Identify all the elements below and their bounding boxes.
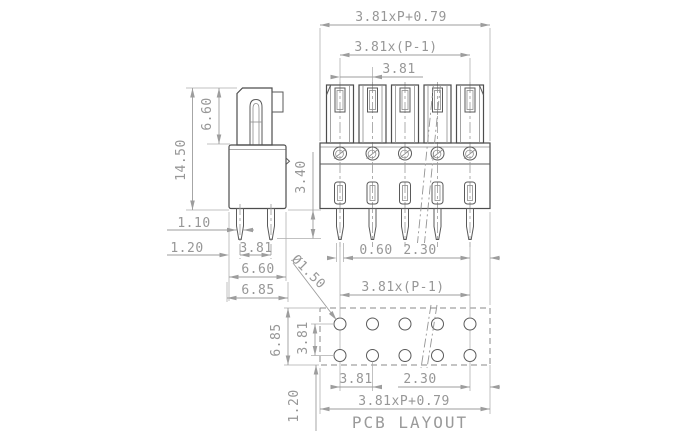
- dim-side-tower-height: 6.60: [200, 97, 215, 130]
- side-slot-inner: [253, 104, 259, 146]
- pcb-layout-title: PCB LAYOUT: [352, 413, 468, 432]
- break-line: [421, 305, 431, 368]
- dim-pcb-edge-offset: 2.30: [403, 372, 436, 387]
- dim-side-body-width: 6.60: [241, 262, 274, 277]
- dim-front-span: 3.81x(P-1): [354, 40, 437, 55]
- front-view-dimensions-bottom: 0.60 2.30: [327, 243, 500, 262]
- dim-side-pin-offset: 1.20: [170, 241, 203, 256]
- dim-side-height: 14.50: [174, 139, 189, 181]
- front-view-dimensions-top: 3.81xP+0.79 3.81x(P-1) 3.81: [320, 10, 490, 141]
- dim-pcb-row-pitch: 3.81: [296, 321, 311, 354]
- side-latch-bump: [272, 92, 283, 112]
- drawing-canvas: 14.50 6.60 3.40 1.10 1.20 3.81 6.60: [0, 0, 680, 440]
- dim-pcb-bottom-margin: 1.20: [287, 389, 302, 422]
- side-view: [229, 88, 290, 259]
- dim-side-pin-thickness: 1.10: [177, 216, 210, 231]
- pcb-layout: [320, 305, 490, 368]
- side-body-outline: [229, 145, 286, 209]
- dim-pcb-hole-diameter: Ø1.50: [288, 252, 328, 292]
- dim-front-edge-offset: 2.30: [403, 243, 436, 258]
- dim-pcb-span: 3.81x(P-1): [361, 280, 444, 295]
- dim-pcb-pitch: 3.81: [339, 372, 372, 387]
- dim-front-pitch: 3.81: [382, 62, 415, 77]
- dim-side-pitch: 3.81: [239, 241, 272, 256]
- dim-front-pin-width: 0.60: [359, 243, 392, 258]
- dim-pcb-overall: 3.81xP+0.79: [358, 394, 450, 409]
- dim-pcb-height: 6.85: [269, 323, 284, 356]
- dim-side-overall-width: 6.85: [241, 283, 274, 298]
- dim-front-overall: 3.81xP+0.79: [355, 10, 447, 25]
- connector-technical-drawing: 14.50 6.60 3.40 1.10 1.20 3.81 6.60: [0, 0, 680, 440]
- dim-side-pin-length: 3.40: [294, 160, 309, 193]
- side-tower-outline: [237, 88, 272, 145]
- front-view: [320, 82, 490, 247]
